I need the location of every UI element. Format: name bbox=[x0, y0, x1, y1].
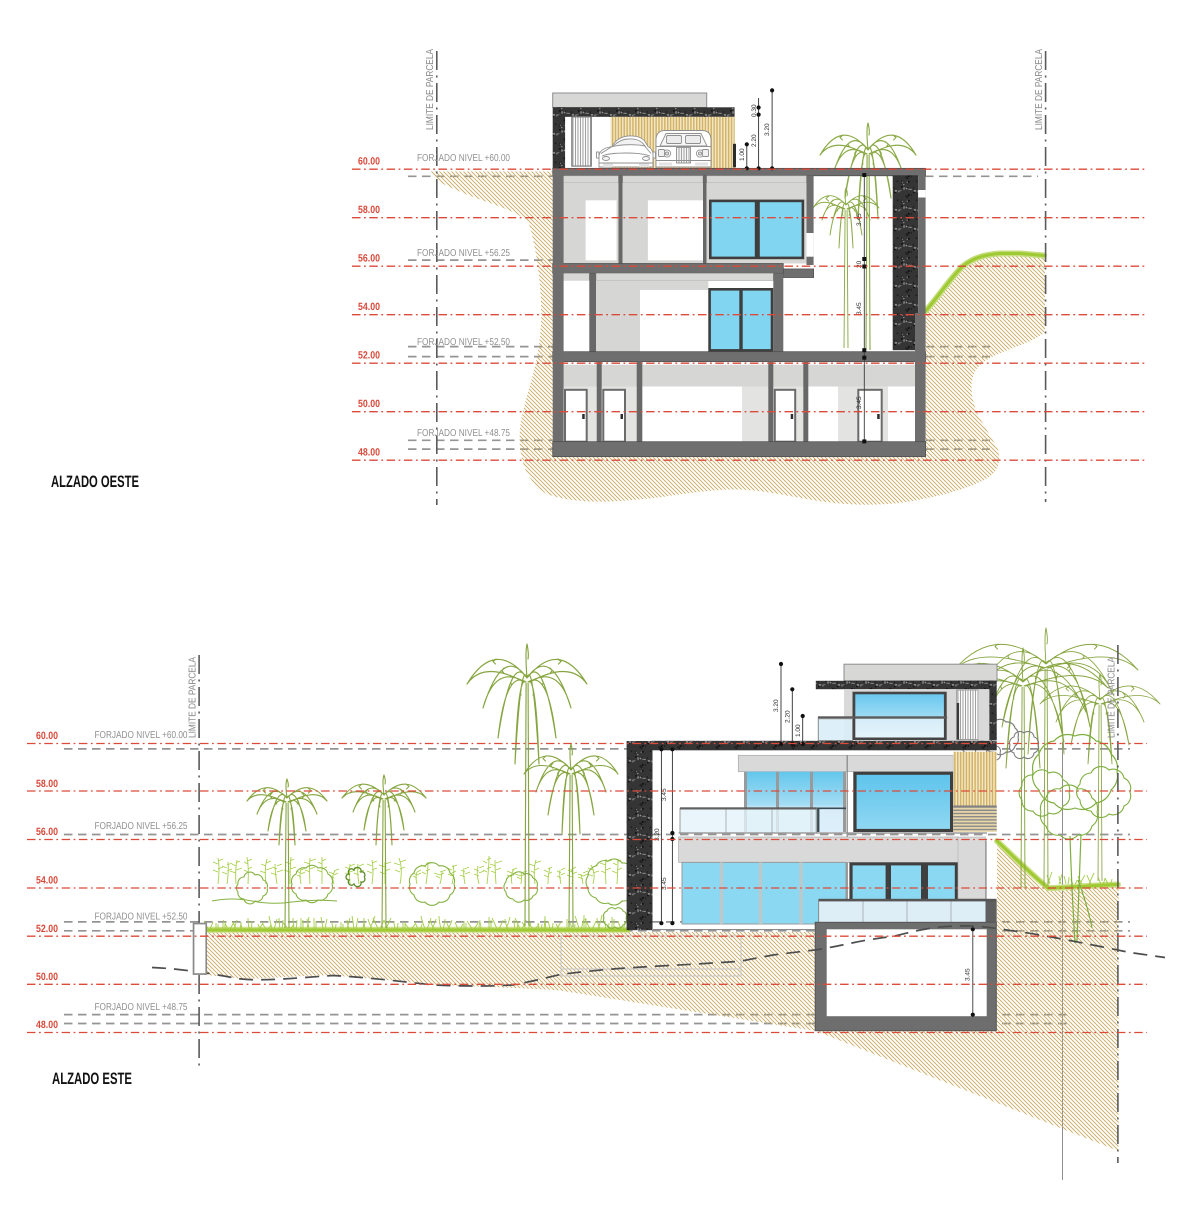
svg-text:20: 20 bbox=[856, 260, 863, 268]
svg-text:ALZADO OESTE: ALZADO OESTE bbox=[51, 473, 139, 491]
svg-text:3.45: 3.45 bbox=[856, 213, 863, 226]
svg-text:LIMITE DE PARCELA: LIMITE DE PARCELA bbox=[1107, 657, 1118, 738]
svg-text:48.00: 48.00 bbox=[36, 1019, 58, 1031]
svg-text:LIMITE DE PARCELA: LIMITE DE PARCELA bbox=[1034, 49, 1045, 130]
svg-text:LIMITE DE PARCELA: LIMITE DE PARCELA bbox=[425, 49, 436, 130]
svg-text:FORJADO NIVEL +48.75: FORJADO NIVEL +48.75 bbox=[417, 428, 510, 439]
svg-text:FORJADO NIVEL +60.00: FORJADO NIVEL +60.00 bbox=[417, 153, 510, 164]
svg-text:50.00: 50.00 bbox=[358, 398, 380, 410]
svg-text:FORJADO NIVEL +56.25: FORJADO NIVEL +56.25 bbox=[417, 248, 510, 259]
svg-text:3.45: 3.45 bbox=[856, 396, 863, 409]
svg-text:3.45: 3.45 bbox=[965, 968, 972, 981]
svg-text:56.00: 56.00 bbox=[36, 826, 58, 838]
svg-text:48.00: 48.00 bbox=[358, 447, 380, 459]
svg-text:58.00: 58.00 bbox=[358, 204, 380, 216]
svg-text:FORJADO NIVEL +52.50: FORJADO NIVEL +52.50 bbox=[95, 911, 188, 922]
svg-text:2.20: 2.20 bbox=[751, 134, 758, 147]
svg-text:60.00: 60.00 bbox=[358, 156, 380, 168]
svg-text:54.00: 54.00 bbox=[36, 875, 58, 887]
svg-text:3.45: 3.45 bbox=[661, 788, 668, 801]
svg-text:1.00: 1.00 bbox=[739, 148, 746, 161]
svg-text:LIMITE DE PARCELA: LIMITE DE PARCELA bbox=[188, 657, 199, 738]
svg-text:3.45: 3.45 bbox=[856, 302, 863, 315]
svg-text:52.00: 52.00 bbox=[358, 350, 380, 362]
svg-text:FORJADO NIVEL +60.00: FORJADO NIVEL +60.00 bbox=[95, 730, 188, 741]
svg-text:60.00: 60.00 bbox=[36, 730, 58, 742]
svg-text:3.20: 3.20 bbox=[773, 699, 780, 712]
svg-text:FORJADO NIVEL +52.50: FORJADO NIVEL +52.50 bbox=[417, 337, 510, 348]
svg-text:56.00: 56.00 bbox=[358, 253, 380, 265]
svg-text:50.00: 50.00 bbox=[36, 971, 58, 983]
svg-text:54.00: 54.00 bbox=[358, 301, 380, 313]
svg-text:3.20: 3.20 bbox=[764, 123, 771, 136]
svg-text:1.00: 1.00 bbox=[795, 724, 802, 737]
svg-text:FORJADO NIVEL +56.25: FORJADO NIVEL +56.25 bbox=[95, 821, 188, 832]
svg-text:52.00: 52.00 bbox=[36, 923, 58, 935]
svg-text:58.00: 58.00 bbox=[36, 778, 58, 790]
svg-text:FORJADO NIVEL +48.75: FORJADO NIVEL +48.75 bbox=[95, 1002, 188, 1013]
svg-text:ALZADO ESTE: ALZADO ESTE bbox=[52, 1070, 132, 1088]
svg-text:2.20: 2.20 bbox=[785, 710, 792, 723]
svg-text:0.30: 0.30 bbox=[751, 104, 758, 117]
